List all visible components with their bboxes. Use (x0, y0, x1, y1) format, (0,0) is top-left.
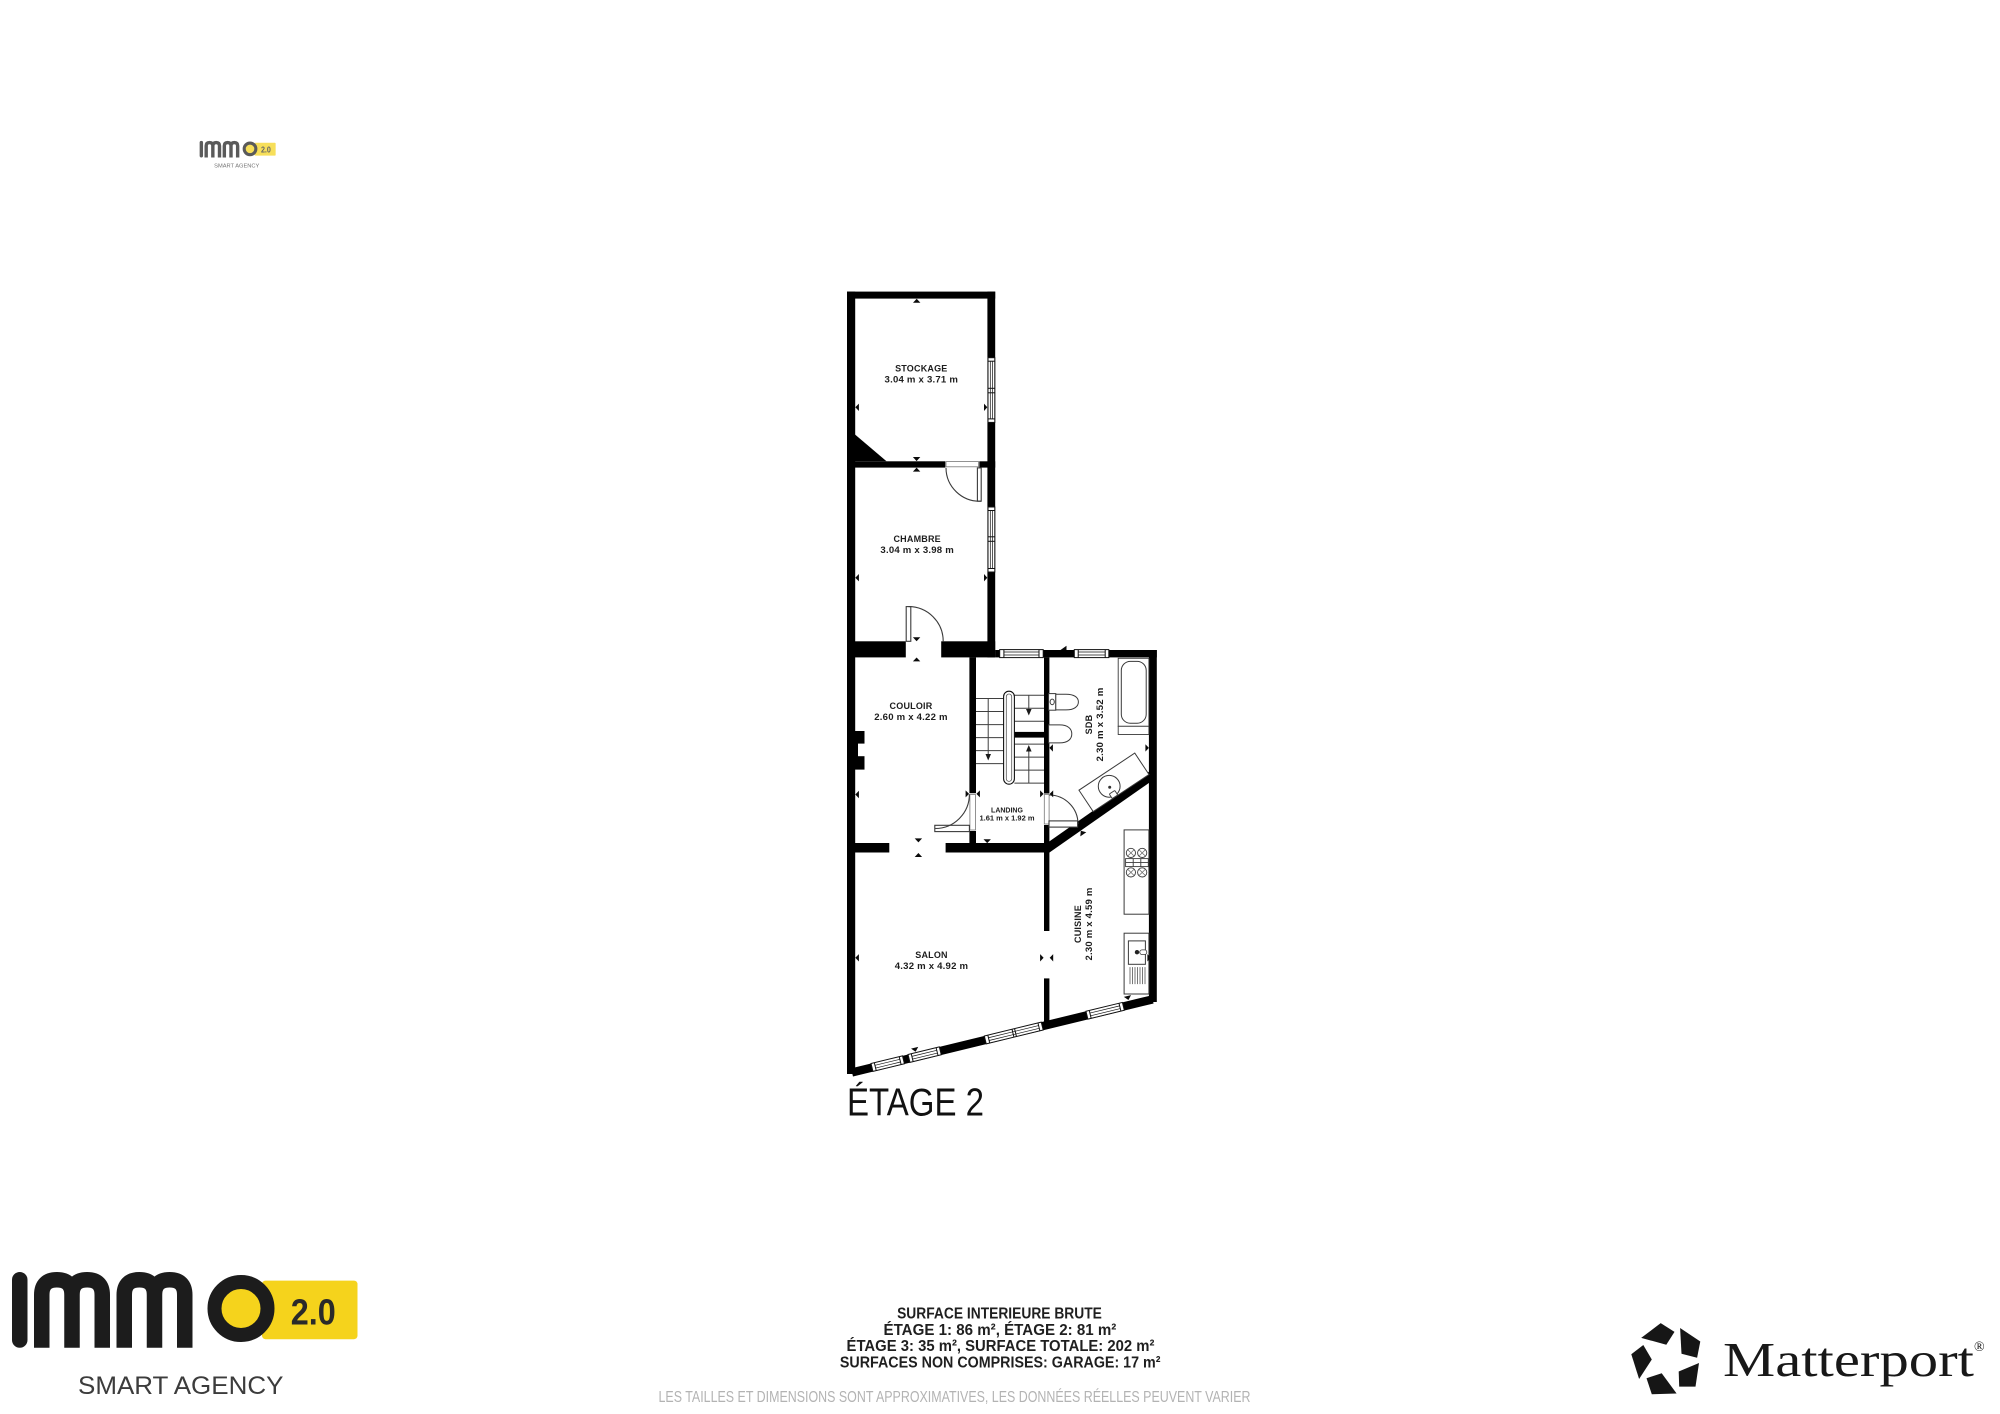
svg-text:LES TAILLES ET DIMENSIONS SONT: LES TAILLES ET DIMENSIONS SONT APPROXIMA… (659, 1387, 1251, 1406)
svg-text:3.04 m x 3.98 m: 3.04 m x 3.98 m (880, 545, 954, 555)
svg-text:2.60 m x 4.22 m: 2.60 m x 4.22 m (874, 712, 948, 722)
svg-text:CHAMBRE: CHAMBRE (893, 534, 940, 544)
svg-text:SDB: SDB (1084, 714, 1094, 734)
svg-text:2.30 m x 3.52 m: 2.30 m x 3.52 m (1095, 688, 1105, 762)
svg-text:ÉTAGE 1: 86 m², ÉTAGE 2: 81 m²: ÉTAGE 1: 86 m², ÉTAGE 2: 81 m² (884, 1320, 1117, 1339)
svg-text:1.61 m x 1.92 m: 1.61 m x 1.92 m (980, 815, 1035, 822)
svg-text:3.04 m x 3.71 m: 3.04 m x 3.71 m (885, 375, 959, 385)
svg-text:COULOIR: COULOIR (890, 701, 933, 711)
svg-text:ÉTAGE 3: 35 m², SURFACE TOTALE: ÉTAGE 3: 35 m², SURFACE TOTALE: 202 m² (847, 1336, 1155, 1355)
svg-text:SURFACE INTERIEURE BRUTE: SURFACE INTERIEURE BRUTE (897, 1306, 1102, 1323)
svg-text:STOCKAGE: STOCKAGE (895, 364, 947, 374)
svg-text:SURFACES NON COMPRISES: GARAGE: SURFACES NON COMPRISES: GARAGE: 17 m² (840, 1354, 1161, 1371)
svg-text:CUISINE: CUISINE (1073, 905, 1083, 943)
svg-text:SALON: SALON (915, 950, 948, 960)
svg-text:2.30 m x 4.59 m: 2.30 m x 4.59 m (1084, 888, 1094, 961)
svg-text:4.32 m x 4.92 m: 4.32 m x 4.92 m (895, 961, 969, 971)
svg-text:LANDING: LANDING (991, 807, 1023, 814)
svg-text:Matterport: Matterport (1723, 1332, 1974, 1387)
svg-text:ÉTAGE 2: ÉTAGE 2 (847, 1082, 984, 1125)
svg-text:®: ® (1974, 1340, 1985, 1355)
